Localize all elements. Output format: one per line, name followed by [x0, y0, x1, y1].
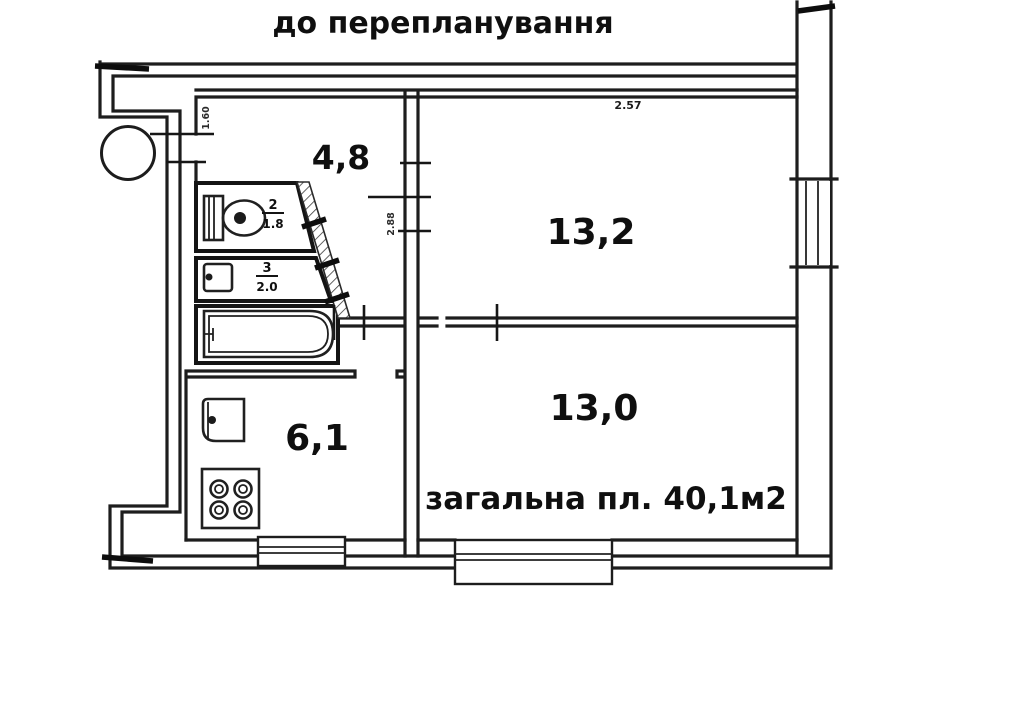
lavatory-area: 2.0: [256, 280, 277, 294]
dimension-top-width: 2.57: [614, 99, 641, 112]
floorplan-drawing: до перепланування: [0, 0, 1024, 720]
total-area-label: загальна пл. 40,1м2: [425, 481, 787, 517]
floorplan-page: до перепланування: [0, 0, 1024, 720]
wc-number: 2: [268, 198, 277, 213]
dimension-left-height: 1.60: [201, 106, 212, 130]
room-top-area-label: 13,2: [547, 212, 636, 253]
kitchen-sink-icon: [203, 399, 244, 441]
bathroom: [196, 306, 338, 363]
room-window-bottom: [455, 540, 612, 584]
hall-area-label: 4,8: [312, 138, 370, 177]
dimension-hall-width: 2.88: [386, 212, 397, 236]
ventilation-circle: [102, 127, 155, 180]
kitchen-area-label: 6,1: [285, 418, 349, 459]
wc-area: 1.8: [262, 217, 283, 231]
stove-icon: [202, 469, 259, 528]
room-bottom-area-label: 13,0: [550, 388, 639, 429]
plan-title: до перепланування: [272, 6, 613, 41]
lavatory-number: 3: [262, 261, 271, 276]
kitchen-window: [258, 537, 345, 566]
